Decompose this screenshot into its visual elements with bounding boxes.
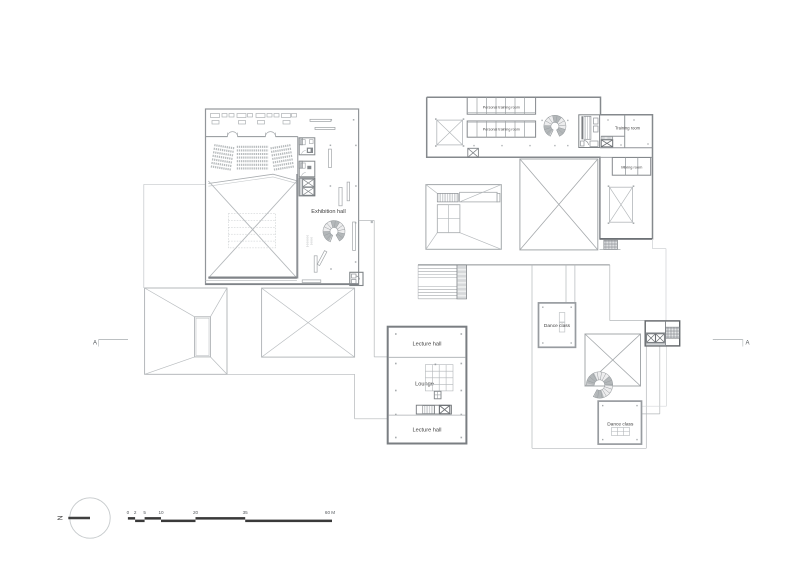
svg-text:20: 20	[193, 510, 199, 515]
svg-text:0: 0	[127, 510, 130, 515]
svg-text:60 M: 60 M	[325, 510, 335, 515]
svg-text:Dance class: Dance class	[607, 422, 634, 428]
svg-text:Lecture hall: Lecture hall	[413, 428, 442, 434]
svg-text:5: 5	[143, 510, 146, 515]
svg-text:Personal training room: Personal training room	[483, 127, 520, 131]
svg-text:0 0 0 0 0 0: 0 0 0 0 0 0	[306, 234, 310, 247]
svg-text:N: N	[58, 515, 65, 520]
svg-text:Exhibition hall: Exhibition hall	[311, 209, 346, 215]
svg-text:Training room: Training room	[615, 126, 641, 131]
svg-text:Dance class: Dance class	[544, 323, 571, 329]
svg-text:Mixing room: Mixing room	[621, 164, 642, 169]
svg-text:35: 35	[243, 510, 249, 515]
svg-text:Lecture hall: Lecture hall	[413, 342, 442, 348]
svg-text:Personal training room: Personal training room	[483, 105, 520, 109]
svg-text:A: A	[93, 341, 97, 347]
svg-text:0 0 0 0: 0 0 0 0	[310, 236, 314, 244]
svg-text:10: 10	[158, 510, 164, 515]
svg-text:A: A	[745, 341, 749, 347]
svg-text:2: 2	[134, 510, 137, 515]
